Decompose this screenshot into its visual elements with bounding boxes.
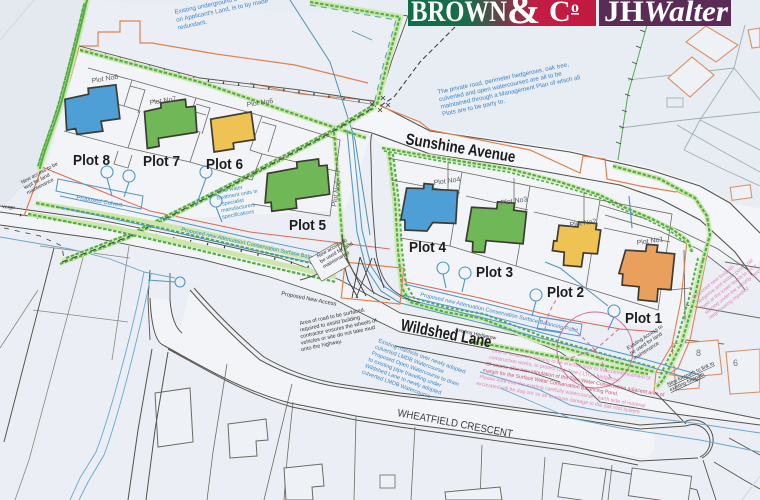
svg-text:Plot 5: Plot 5 bbox=[289, 217, 326, 234]
svg-text:JHWalter: JHWalter bbox=[604, 0, 728, 28]
svg-text:Plot 3: Plot 3 bbox=[476, 264, 513, 281]
svg-text:Plot 7: Plot 7 bbox=[143, 153, 180, 170]
svg-text:Plot 1: Plot 1 bbox=[625, 310, 662, 327]
svg-text:Plot 4: Plot 4 bbox=[409, 239, 447, 256]
svg-text:Plot 6: Plot 6 bbox=[206, 156, 243, 173]
svg-text:BROWN: BROWN bbox=[411, 0, 507, 28]
svg-text:6: 6 bbox=[733, 358, 738, 368]
svg-text:8: 8 bbox=[696, 348, 701, 358]
svg-text:Plot 2: Plot 2 bbox=[547, 284, 584, 301]
svg-text:verge: verge bbox=[2, 204, 16, 211]
svg-text:o: o bbox=[571, 0, 579, 16]
svg-text:Plot 8: Plot 8 bbox=[73, 152, 110, 169]
svg-text:C: C bbox=[549, 0, 571, 28]
